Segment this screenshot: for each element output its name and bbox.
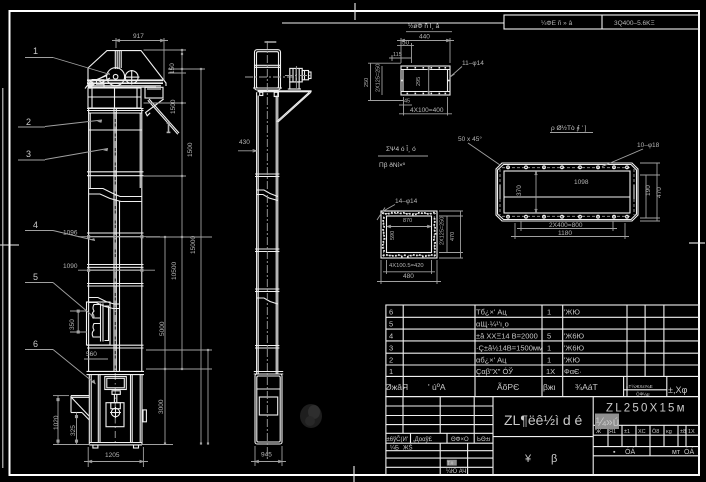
svg-text:ΘΦ×Ο: ΘΦ×Ο (451, 437, 469, 443)
svg-text:11–φ14: 11–φ14 (462, 60, 484, 67)
svg-text:6: 6 (389, 308, 393, 317)
svg-text:45: 45 (404, 99, 410, 105)
svg-text:1Χ: 1Χ (688, 429, 695, 435)
svg-text:5: 5 (547, 332, 551, 341)
svg-text:'Ж: 'Ж (595, 429, 601, 435)
svg-text:Τб¿×' Ац: Τб¿×' Ац (476, 308, 507, 317)
svg-text:10–φ18: 10–φ18 (637, 142, 660, 149)
svg-text:470: 470 (656, 187, 663, 198)
svg-text:5: 5 (33, 272, 38, 282)
svg-text:ÓÁ: ÓÁ (625, 447, 635, 456)
svg-text:1180: 1180 (558, 230, 572, 237)
svg-text:,Доαў£: ,Доαў£ (413, 436, 433, 443)
svg-text:4X100.5=420: 4X100.5=420 (389, 263, 424, 269)
svg-text:¾ΑáΤ: ¾ΑáΤ (575, 382, 598, 392)
svg-text:115: 115 (393, 52, 402, 58)
svg-text:±8: ±8 (680, 429, 686, 435)
svg-text:3: 3 (389, 344, 393, 353)
svg-text:ΣΨ4 ó Ī¸ ó: ΣΨ4 ó Ī¸ ó (386, 145, 416, 153)
svg-text:±Τ½ЖΧεІ¾Ε: ±Τ½ЖΧεІ¾Ε (626, 383, 653, 389)
svg-text:14–φ14: 14–φ14 (395, 198, 418, 205)
svg-text:1205: 1205 (105, 452, 120, 459)
svg-text:945: 945 (261, 452, 272, 459)
svg-text:αб¿×' Ац: αб¿×' Ац (476, 356, 507, 365)
svg-text:'Ж6Ю: 'Ж6Ю (564, 344, 585, 353)
svg-text:325: 325 (70, 425, 77, 436)
svg-text:1: 1 (547, 344, 551, 353)
svg-text:Πβ ðΝί×º: Πβ ðΝί×º (379, 161, 406, 169)
svg-text:470: 470 (450, 232, 456, 241)
svg-text:870: 870 (403, 218, 412, 224)
svg-text:3000: 3000 (158, 399, 165, 414)
svg-text:ЖŠ: ЖŠ (403, 445, 413, 452)
svg-text:1098: 1098 (574, 179, 589, 186)
svg-text:½øΦ ñ Ī¸ â: ½øΦ ñ Ī¸ â (408, 22, 440, 30)
svg-text:1: 1 (547, 356, 551, 365)
svg-text:1090: 1090 (63, 263, 78, 270)
svg-text:150: 150 (169, 63, 176, 74)
svg-text:295: 295 (416, 77, 422, 86)
svg-text:±6ўČ(И': ±6ўČ(И' (387, 436, 408, 443)
svg-text:1096: 1096 (63, 230, 78, 237)
svg-text:2X125=250: 2X125=250 (376, 64, 382, 92)
svg-text:Τ#: Τ# (447, 461, 454, 467)
svg-text:мт: мт (672, 449, 681, 456)
svg-text:4: 4 (389, 332, 393, 341)
svg-text:±â XXΞ14 Β=2000: ±â XXΞ14 Β=2000 (476, 332, 538, 341)
svg-text:1500: 1500 (187, 142, 194, 157)
svg-text:6: 6 (33, 339, 38, 349)
svg-text:5000: 5000 (159, 321, 166, 336)
svg-text:590: 590 (390, 231, 396, 240)
svg-text:±1: ±1 (624, 429, 630, 435)
svg-text:¼Б: ¼Б (390, 446, 399, 452)
svg-text:αЩ·¼¹'ı¸о: αЩ·¼¹'ı¸о (476, 320, 509, 329)
svg-text:430: 430 (239, 139, 250, 146)
svg-text:ZL250X15м: ZL250X15м (606, 400, 687, 414)
svg-text:3: 3 (26, 149, 31, 159)
svg-text:350: 350 (69, 319, 76, 330)
svg-text:2: 2 (389, 356, 393, 365)
svg-text:¼Ю АЧ: ¼Ю АЧ (446, 469, 466, 475)
svg-text:β: β (551, 453, 557, 465)
svg-text:560: 560 (86, 351, 97, 358)
svg-text:2X400=800: 2X400=800 (549, 222, 583, 229)
svg-text:1: 1 (547, 308, 551, 317)
svg-text:±,Χφ: ±,Χφ (668, 385, 687, 395)
svg-text:5: 5 (389, 320, 393, 329)
svg-text:1500: 1500 (170, 99, 177, 114)
svg-text:2X125=250: 2X125=250 (440, 217, 446, 245)
svg-text:¼»ú: ¼»ú (596, 415, 619, 429)
svg-text:ΧС: ΧС (638, 429, 646, 435)
svg-text:190: 190 (645, 185, 652, 196)
svg-text:50 x 45°: 50 x 45° (458, 135, 482, 143)
svg-text:ÓФ¼μ: ÓФ¼μ (636, 391, 650, 397)
svg-text:10500: 10500 (171, 262, 178, 280)
svg-text:Я1: Я1 (609, 429, 616, 435)
svg-text:ρ Ø½Τò ∮ ' ]: ρ Ø½Τò ∮ ' ] (551, 124, 587, 132)
svg-text:1: 1 (33, 46, 38, 56)
svg-text:Ö8: Ö8 (652, 428, 659, 435)
svg-text:3Q400–5.6KΞ: 3Q400–5.6KΞ (614, 20, 655, 27)
svg-text:ЬΘ±ι: ЬΘ±ι (477, 437, 491, 443)
svg-text:15000: 15000 (190, 236, 197, 254)
svg-text:'ЖЮ: 'ЖЮ (564, 356, 580, 365)
svg-text:'ЖЮ: 'ЖЮ (564, 308, 580, 317)
svg-text:·Ç±â½14Β=1500мм: ·Ç±â½14Β=1500мм (476, 344, 543, 353)
svg-text:370: 370 (516, 185, 523, 196)
svg-text:¥: ¥ (524, 453, 532, 465)
svg-text:βжι: βжι (543, 382, 556, 392)
svg-text:250: 250 (364, 78, 370, 87)
svg-text:2: 2 (26, 117, 31, 127)
svg-text:4X100=400: 4X100=400 (410, 107, 444, 114)
svg-text:1Χ: 1Χ (546, 367, 555, 376)
svg-text:ØжâЯ: ØжâЯ (385, 382, 408, 392)
svg-text:1: 1 (389, 367, 393, 376)
svg-text:Çαβ"Χ" ÓЎ: Çαβ"Χ" ÓЎ (476, 367, 513, 376)
svg-text:1020: 1020 (53, 415, 60, 430)
svg-text:917: 917 (133, 33, 144, 40)
svg-text:480: 480 (403, 273, 414, 280)
svg-text:'Ж6Ю: 'Ж6Ю (564, 332, 585, 341)
svg-text:ÃõРЄ: ÃõРЄ (497, 382, 519, 392)
svg-text:4: 4 (33, 220, 38, 230)
svg-text:440: 440 (419, 34, 430, 41)
svg-text:' úºА: ' úºА (428, 382, 446, 392)
svg-text:ÓÁ: ÓÁ (684, 447, 694, 456)
svg-text:κg: κg (666, 429, 672, 435)
svg-text:¼ΦΕ ñ » â: ¼ΦΕ ñ » â (541, 20, 573, 27)
svg-text:ZL¶ёê½ì d é: ZL¶ёê½ì d é (504, 412, 583, 428)
svg-text:50: 50 (402, 40, 410, 47)
svg-text:ФαЄ·: ФαЄ· (564, 367, 582, 376)
